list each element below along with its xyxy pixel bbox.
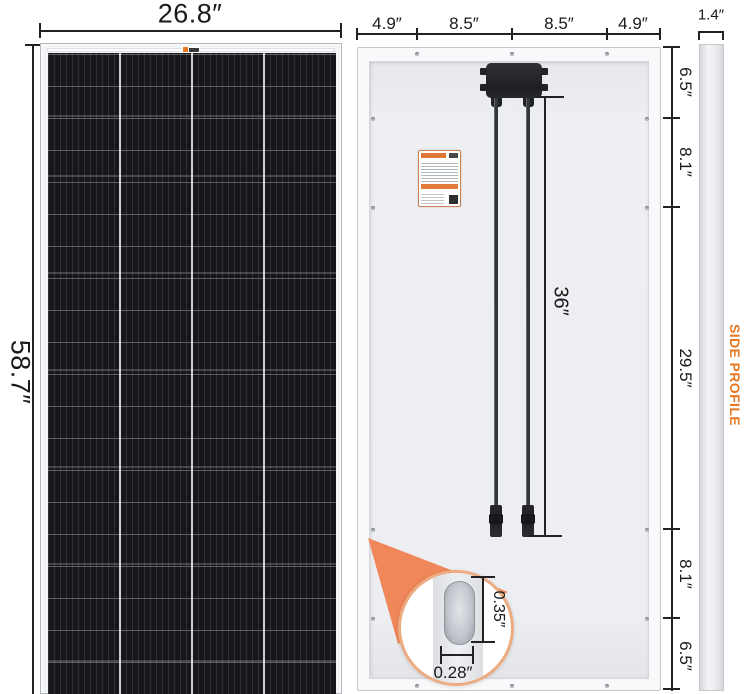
back-side-tick xyxy=(663,528,680,530)
solar-cells-grid xyxy=(48,53,336,694)
side-dim-3: 29.5″ xyxy=(675,348,695,387)
front-width-dim-line xyxy=(40,30,342,32)
spec-label-logo xyxy=(449,153,458,158)
mounting-hole xyxy=(605,684,609,688)
mounting-hole xyxy=(415,52,419,56)
back-top-dim-line xyxy=(357,33,661,35)
brand-logo-orange-mark xyxy=(183,47,188,52)
solar-panel-front-view xyxy=(40,43,342,694)
spec-label-warning-band xyxy=(421,184,458,189)
side-profile-view xyxy=(699,44,724,691)
mounting-hole xyxy=(371,117,375,121)
back-top-tick xyxy=(416,28,418,40)
mounting-hole xyxy=(510,684,514,688)
qr-code xyxy=(449,195,458,204)
side-profile-label: SIDE PROFILE xyxy=(727,324,743,426)
back-side-tick xyxy=(663,617,680,619)
hole-height-dim-line xyxy=(482,576,484,643)
side-dim-1: 6.5″ xyxy=(675,67,695,97)
thickness-tick-right xyxy=(722,31,724,40)
back-top-dim-4: 4.9″ xyxy=(618,14,648,34)
front-width-tick-right xyxy=(340,23,342,38)
back-top-tick xyxy=(511,28,513,40)
front-height-dim-line xyxy=(32,44,34,694)
hole-height-label: 0.35″ xyxy=(489,591,507,628)
hole-width-dim-line xyxy=(440,654,474,656)
mounting-slot-hole xyxy=(444,581,475,645)
cell-column-divider xyxy=(191,53,193,694)
mounting-hole xyxy=(645,117,649,121)
hole-width-label: 0.28″ xyxy=(433,663,472,683)
junction-box xyxy=(486,63,542,98)
side-dim-2: 8.1″ xyxy=(675,147,695,177)
cable-dim-line xyxy=(544,96,546,537)
spec-label-text-lines xyxy=(421,192,444,204)
solar-cable-positive xyxy=(526,98,530,508)
back-top-dim-1: 4.9″ xyxy=(372,14,402,34)
cell-column-divider xyxy=(263,53,265,694)
cable-length-label: 36″ xyxy=(549,286,572,315)
brand-logo-dark-mark xyxy=(189,48,199,52)
junction-box-tab xyxy=(480,84,487,91)
junction-box-tab xyxy=(480,68,487,75)
cable-dim-tick-bottom xyxy=(528,535,562,537)
back-top-tick xyxy=(606,28,608,40)
back-side-tick xyxy=(663,206,680,208)
front-width-label: 26.8″ xyxy=(158,0,223,30)
junction-box-tab xyxy=(541,68,548,75)
mounting-hole xyxy=(645,617,649,621)
back-top-tick xyxy=(659,28,661,40)
mounting-hole xyxy=(371,206,375,210)
back-side-tick xyxy=(663,688,680,690)
back-side-tick xyxy=(663,46,680,48)
brand-logo xyxy=(182,46,200,53)
solar-cable-negative xyxy=(494,98,498,508)
spec-label-header xyxy=(421,153,446,158)
mounting-hole xyxy=(645,528,649,532)
thickness-label: 1.4″ xyxy=(698,7,724,24)
side-dim-4: 8.1″ xyxy=(675,559,695,589)
back-side-tick xyxy=(663,117,680,119)
back-top-dim-2: 8.5″ xyxy=(449,14,479,34)
mc4-connector-ring xyxy=(521,514,535,524)
mounting-hole xyxy=(605,52,609,56)
cable-dim-tick-top xyxy=(536,96,564,98)
spec-label xyxy=(418,150,461,207)
back-top-tick xyxy=(356,28,358,40)
spec-label-text-lines xyxy=(421,161,458,182)
diagram-canvas: 26.8″ 58.7″ 4.9″ 8.5″ 8.5″ 4.9″ 1.4″ xyxy=(0,0,749,694)
junction-box-tab xyxy=(541,84,548,91)
front-width-tick-left xyxy=(39,23,41,38)
back-side-dim-line xyxy=(671,47,673,691)
cell-column-divider xyxy=(119,53,121,694)
mounting-hole xyxy=(645,206,649,210)
front-height-label: 58.7″ xyxy=(5,340,36,405)
mounting-hole xyxy=(510,52,514,56)
side-dim-5: 6.5″ xyxy=(675,641,695,671)
thickness-tick-left xyxy=(698,31,700,40)
thickness-dim-line xyxy=(698,31,724,33)
mc4-connector-ring xyxy=(489,514,503,524)
back-top-dim-3: 8.5″ xyxy=(544,14,574,34)
mounting-hole xyxy=(415,684,419,688)
